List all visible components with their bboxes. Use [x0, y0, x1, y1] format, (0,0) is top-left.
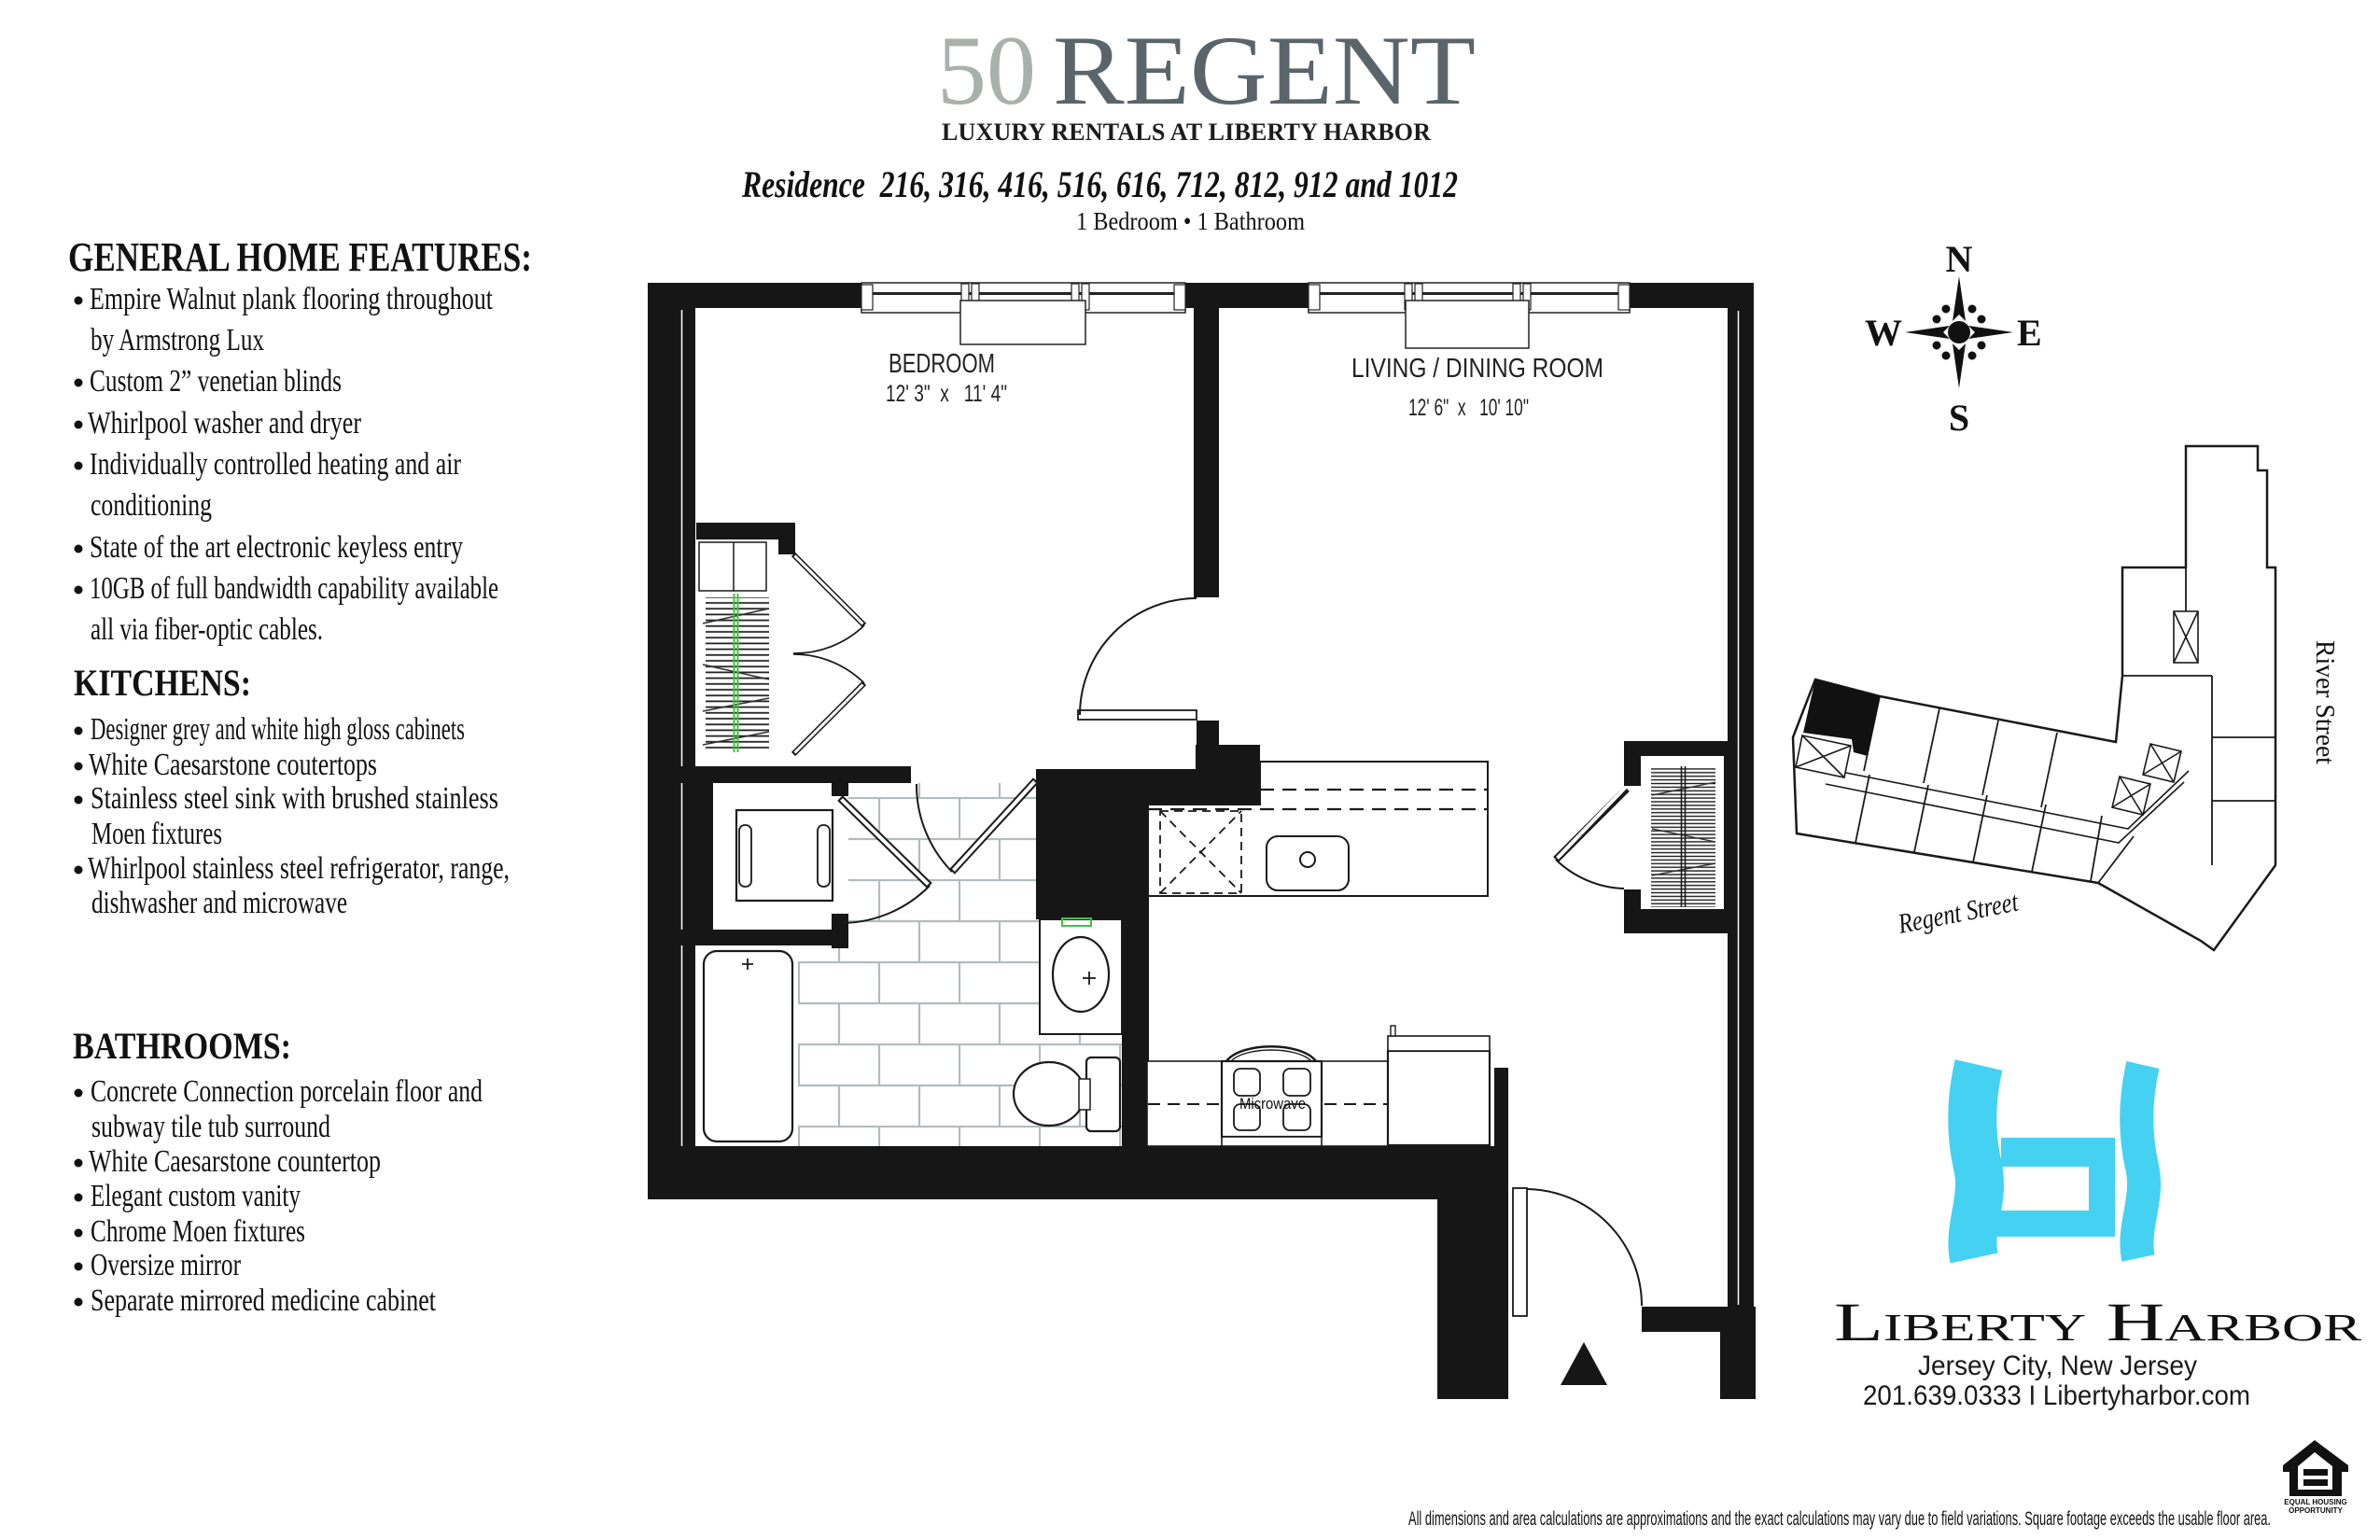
svg-text:White Caesarstone countertop: White Caesarstone countertop [89, 1144, 381, 1179]
svg-text:LUXURY RENTALS AT LIBERTY HARB: LUXURY RENTALS AT LIBERTY HARBOR [942, 119, 1431, 146]
svg-text:Residence 216, 316, 416, 516,: Residence 216, 316, 416, 516, 616, 712, … [741, 163, 1458, 205]
svg-text:White Caesarstone coutertops: White Caesarstone coutertops [89, 748, 377, 782]
svg-text:N: N [1946, 238, 1973, 280]
svg-text:50: 50 [937, 16, 1036, 125]
svg-text:KITCHENS:: KITCHENS: [74, 662, 251, 704]
svg-text:Jersey City, New Jersey: Jersey City, New Jersey [1918, 1351, 2197, 1381]
svg-text:State of the art electronic ke: State of the art electronic keyless entr… [90, 530, 463, 565]
svg-text:dishwasher and microwave: dishwasher and microwave [91, 886, 347, 920]
svg-text:Chrome Moen fixtures: Chrome Moen fixtures [91, 1214, 305, 1249]
svg-text:River Street: River Street [2310, 640, 2339, 764]
svg-text:Empire Walnut plank flooring t: Empire Walnut plank flooring throughout [90, 282, 493, 316]
svg-text:subway tile tub surround: subway tile tub surround [91, 1110, 330, 1144]
svg-text:Designer grey and white high g: Designer grey and white high gloss cabin… [91, 712, 465, 747]
svg-text:LIVING / DINING ROOM: LIVING / DINING ROOM [1351, 354, 1603, 384]
svg-text:E: E [2017, 312, 2042, 354]
svg-text:Moen fixtures: Moen fixtures [91, 817, 222, 851]
svg-text:All dimensions and area calcul: All dimensions and area calculations are… [1408, 1508, 2271, 1530]
svg-text:EQUAL HOUSING: EQUAL HOUSING [2284, 1498, 2346, 1506]
svg-text:W: W [1865, 312, 1902, 354]
svg-text:conditioning: conditioning [91, 488, 212, 523]
svg-text:Whirlpool stainless steel refr: Whirlpool stainless steel refrigerator, … [88, 851, 510, 886]
svg-text:201.639.0333 I Libertyharbor.c: 201.639.0333 I Libertyharbor.com [1863, 1380, 2250, 1411]
svg-text:S: S [1949, 397, 1969, 439]
svg-text:Liberty Harbor: Liberty Harbor [1834, 1292, 2362, 1352]
svg-text:GENERAL HOME FEATURES:: GENERAL HOME FEATURES: [68, 234, 532, 280]
svg-text:Custom 2” venetian blinds: Custom 2” venetian blinds [90, 364, 342, 399]
svg-text:Individually controlled heatin: Individually controlled heating and air [90, 447, 462, 482]
svg-text:Stainless steel sink with brus: Stainless steel sink with brushed stainl… [91, 781, 498, 816]
svg-text:Oversize mirror: Oversize mirror [91, 1248, 242, 1282]
svg-text:12' 6" x 10' 10": 12' 6" x 10' 10" [1408, 395, 1529, 421]
svg-text:Concrete Connection porcelain: Concrete Connection porcelain floor and [91, 1074, 483, 1109]
svg-text:1 Bedroom • 1 Bathroom: 1 Bedroom • 1 Bathroom [1076, 207, 1305, 235]
svg-text:BATHROOMS:: BATHROOMS: [73, 1025, 291, 1067]
svg-text:REGENT: REGENT [1053, 16, 1476, 125]
svg-text:all via fiber-optic cables.: all via fiber-optic cables. [91, 612, 323, 647]
svg-text:BEDROOM: BEDROOM [889, 349, 995, 379]
svg-text:Separate mirrored medicine cab: Separate mirrored medicine cabinet [91, 1283, 436, 1318]
svg-text:Whirlpool washer and dryer: Whirlpool washer and dryer [88, 406, 362, 441]
svg-text:Elegant custom vanity: Elegant custom vanity [91, 1179, 301, 1213]
svg-text:Microwave: Microwave [1239, 1095, 1306, 1113]
svg-text:by Armstrong Lux: by Armstrong Lux [91, 323, 264, 357]
svg-text:OPPORTUNITY: OPPORTUNITY [2289, 1506, 2343, 1515]
svg-text:10GB of full bandwidth capabil: 10GB of full bandwidth capability availa… [90, 571, 498, 606]
svg-text:12' 3" x 11' 4": 12' 3" x 11' 4" [886, 381, 1007, 407]
